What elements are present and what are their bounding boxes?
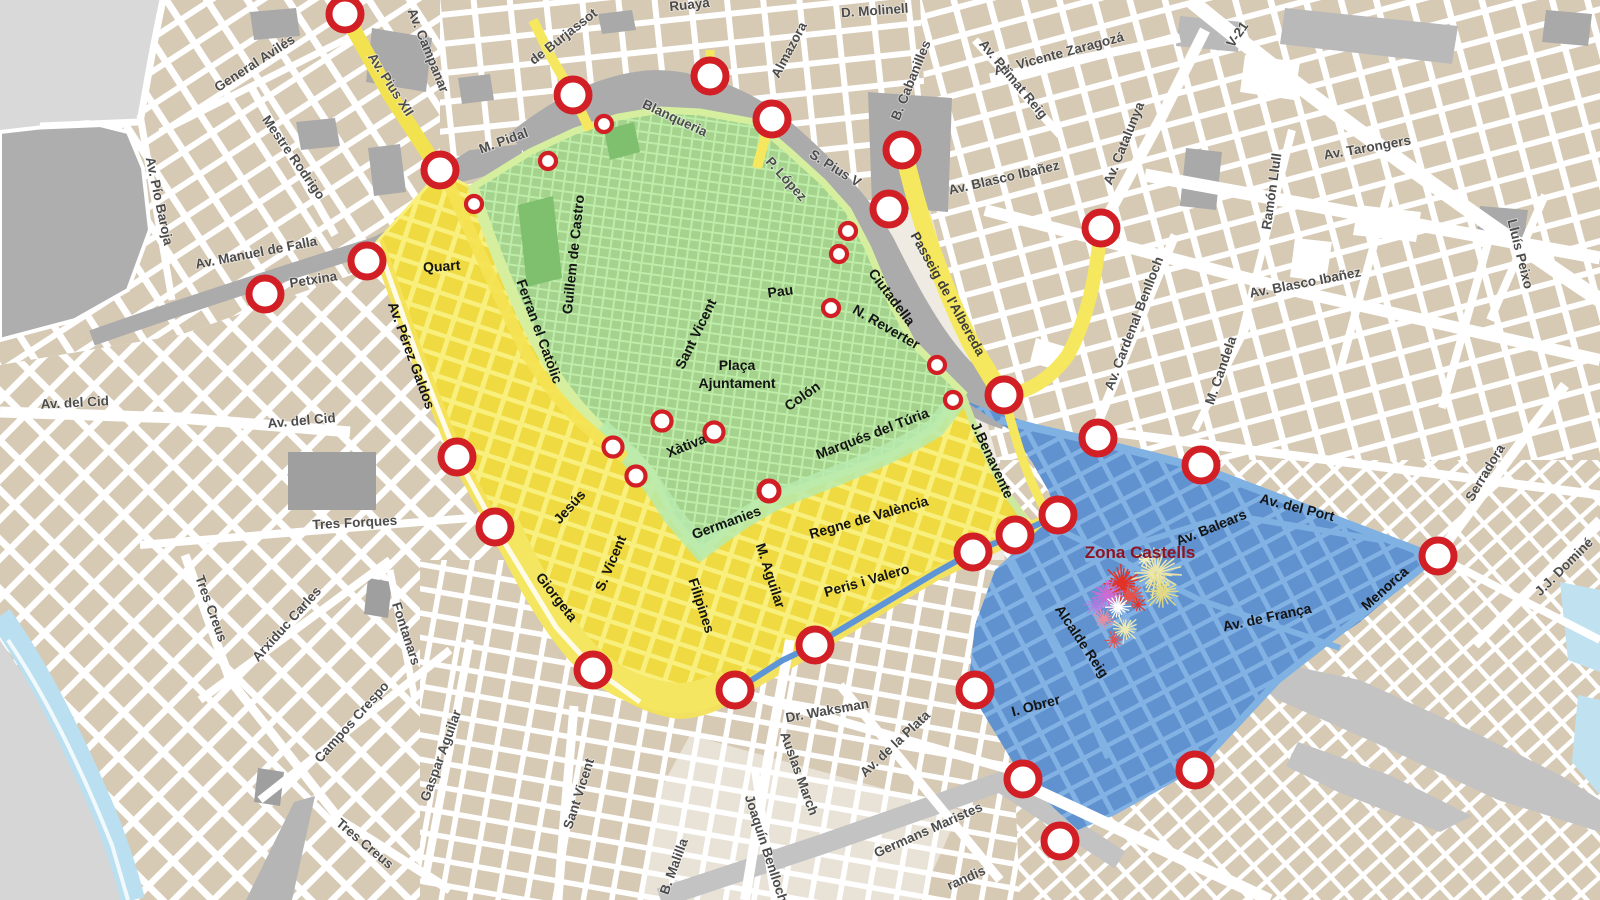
svg-text:Ajuntament: Ajuntament — [699, 375, 776, 391]
svg-text:Zona Castells: Zona Castells — [1085, 543, 1196, 562]
svg-text:Quart: Quart — [422, 257, 461, 276]
svg-text:Plaça: Plaça — [719, 357, 756, 373]
